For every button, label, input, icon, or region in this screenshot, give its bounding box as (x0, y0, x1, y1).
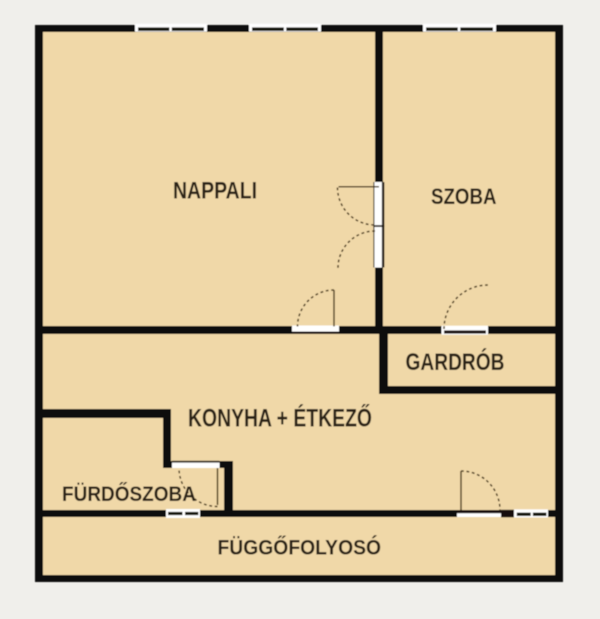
svg-text:FÜRDŐSZOBA: FÜRDŐSZOBA (62, 481, 196, 506)
svg-text:NAPPALI: NAPPALI (173, 178, 257, 205)
svg-text:FÜGGŐFOLYOSÓ: FÜGGŐFOLYOSÓ (218, 535, 382, 560)
svg-text:SZOBA: SZOBA (431, 184, 497, 209)
svg-text:KONYHA + ÉTKEZŐ: KONYHA + ÉTKEZŐ (188, 403, 372, 433)
svg-text:GARDRÓB: GARDRÓB (406, 348, 505, 376)
